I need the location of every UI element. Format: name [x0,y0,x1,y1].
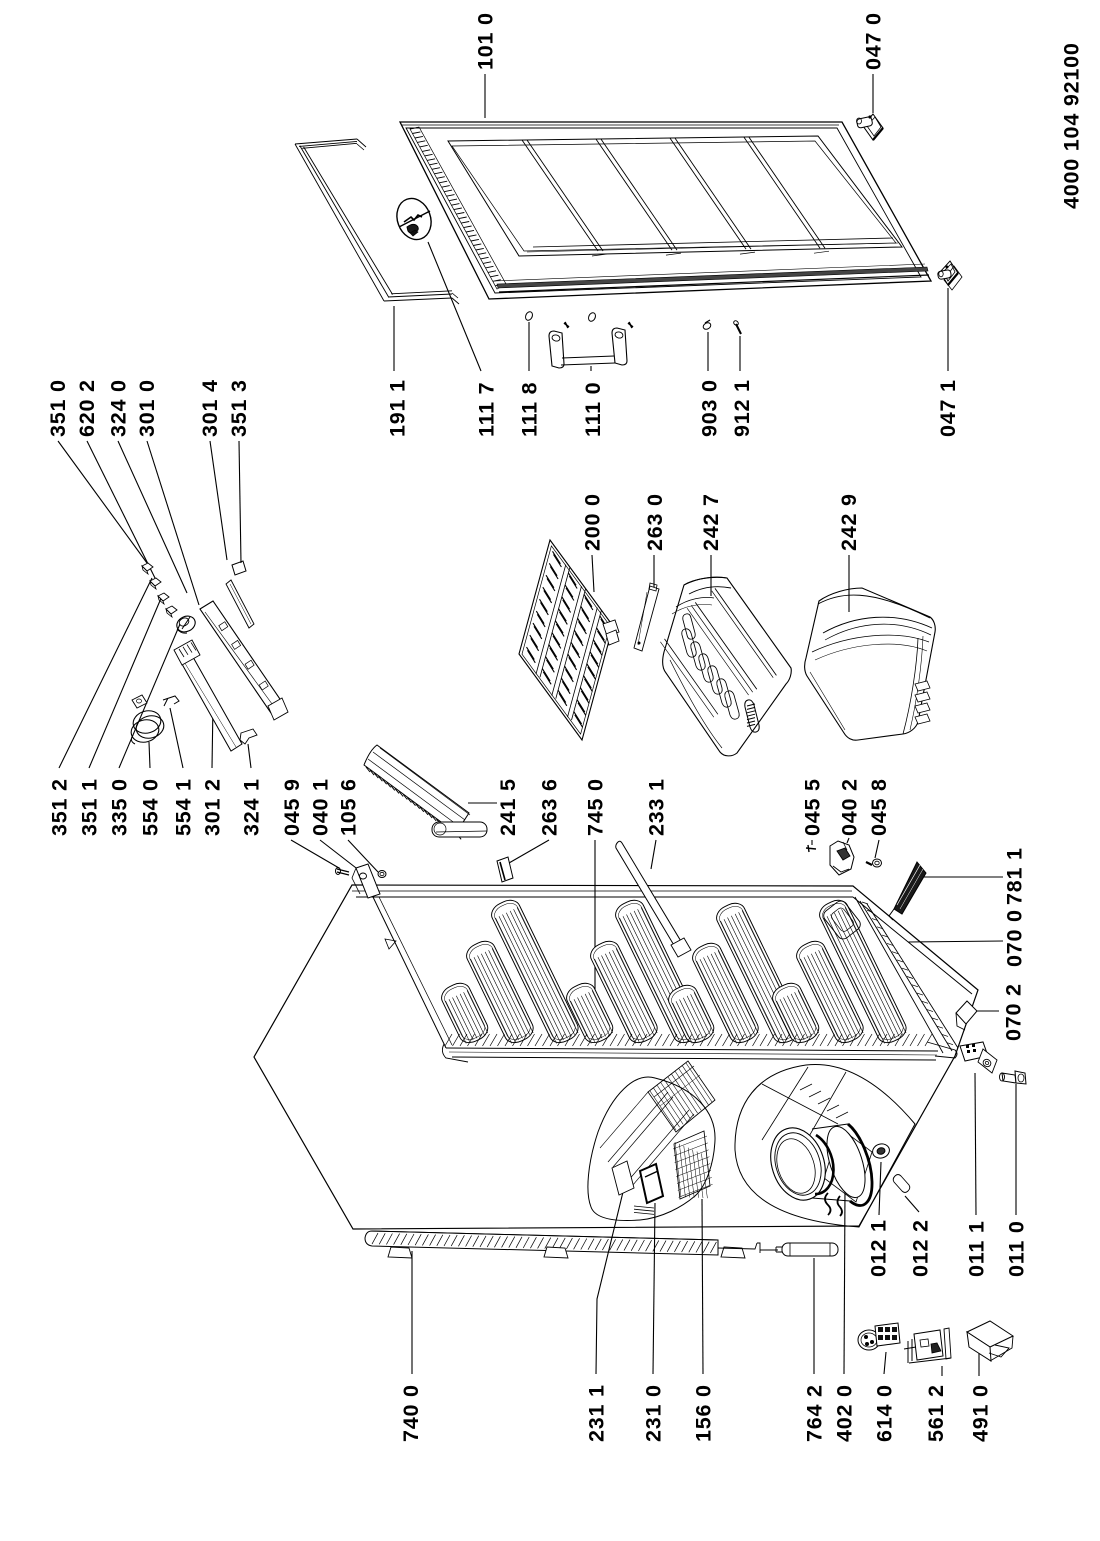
svg-text:045 5: 045 5 [801,778,825,836]
svg-text:614 0: 614 0 [873,1384,897,1442]
svg-text:231 1: 231 1 [585,1384,609,1442]
svg-text:111 8: 111 8 [518,382,542,437]
svg-text:011 1: 011 1 [965,1220,989,1277]
svg-text:764 2: 764 2 [803,1384,827,1442]
svg-text:263 0: 263 0 [643,493,667,551]
svg-text:242 9: 242 9 [837,493,861,551]
svg-text:070 0: 070 0 [1003,909,1027,967]
svg-text:620 2: 620 2 [75,379,99,437]
svg-text:045 9: 045 9 [280,778,304,836]
svg-text:231 0: 231 0 [642,1384,666,1442]
svg-text:111 0: 111 0 [581,382,605,437]
svg-text:242 7: 242 7 [699,493,723,551]
svg-text:011 0: 011 0 [1005,1220,1029,1277]
svg-text:047 0: 047 0 [862,12,886,70]
svg-text:045 8: 045 8 [867,778,891,836]
svg-text:781 1: 781 1 [1003,847,1027,905]
svg-text:561 2: 561 2 [924,1384,948,1442]
svg-text:012 1: 012 1 [867,1219,891,1277]
svg-text:105 6: 105 6 [337,778,361,836]
svg-text:070 2: 070 2 [1002,983,1026,1041]
svg-text:012 2: 012 2 [909,1219,933,1277]
svg-text:4000 104 92100: 4000 104 92100 [1060,42,1084,209]
svg-text:301 0: 301 0 [135,379,159,437]
svg-text:101 0: 101 0 [474,12,498,70]
svg-text:301 4: 301 4 [198,379,222,437]
svg-text:047 1: 047 1 [936,379,960,437]
svg-text:233 1: 233 1 [645,778,669,836]
svg-text:351 0: 351 0 [46,379,70,437]
svg-text:740 0: 740 0 [399,1384,423,1442]
svg-text:324 0: 324 0 [107,379,131,437]
svg-text:040 1: 040 1 [309,778,333,836]
svg-text:200 0: 200 0 [581,493,605,551]
svg-text:324 1: 324 1 [240,778,264,836]
svg-text:402 0: 402 0 [833,1384,857,1442]
svg-text:301 2: 301 2 [201,778,225,836]
svg-text:335 0: 335 0 [108,778,132,836]
svg-text:351 1: 351 1 [78,778,102,836]
svg-text:111 7: 111 7 [475,382,499,437]
svg-text:040 2: 040 2 [838,778,862,836]
svg-text:745 0: 745 0 [584,778,608,836]
svg-text:351 3: 351 3 [227,379,251,437]
svg-text:491 0: 491 0 [969,1384,993,1442]
svg-text:554 0: 554 0 [139,778,163,836]
svg-text:554 1: 554 1 [172,778,196,836]
svg-text:156 0: 156 0 [692,1384,716,1442]
svg-text:263 6: 263 6 [538,778,562,836]
svg-text:191 1: 191 1 [386,379,410,437]
svg-text:351 2: 351 2 [48,778,72,836]
svg-text:241 5: 241 5 [496,778,520,836]
svg-text:912 1: 912 1 [730,379,754,437]
svg-text:903 0: 903 0 [698,379,722,437]
